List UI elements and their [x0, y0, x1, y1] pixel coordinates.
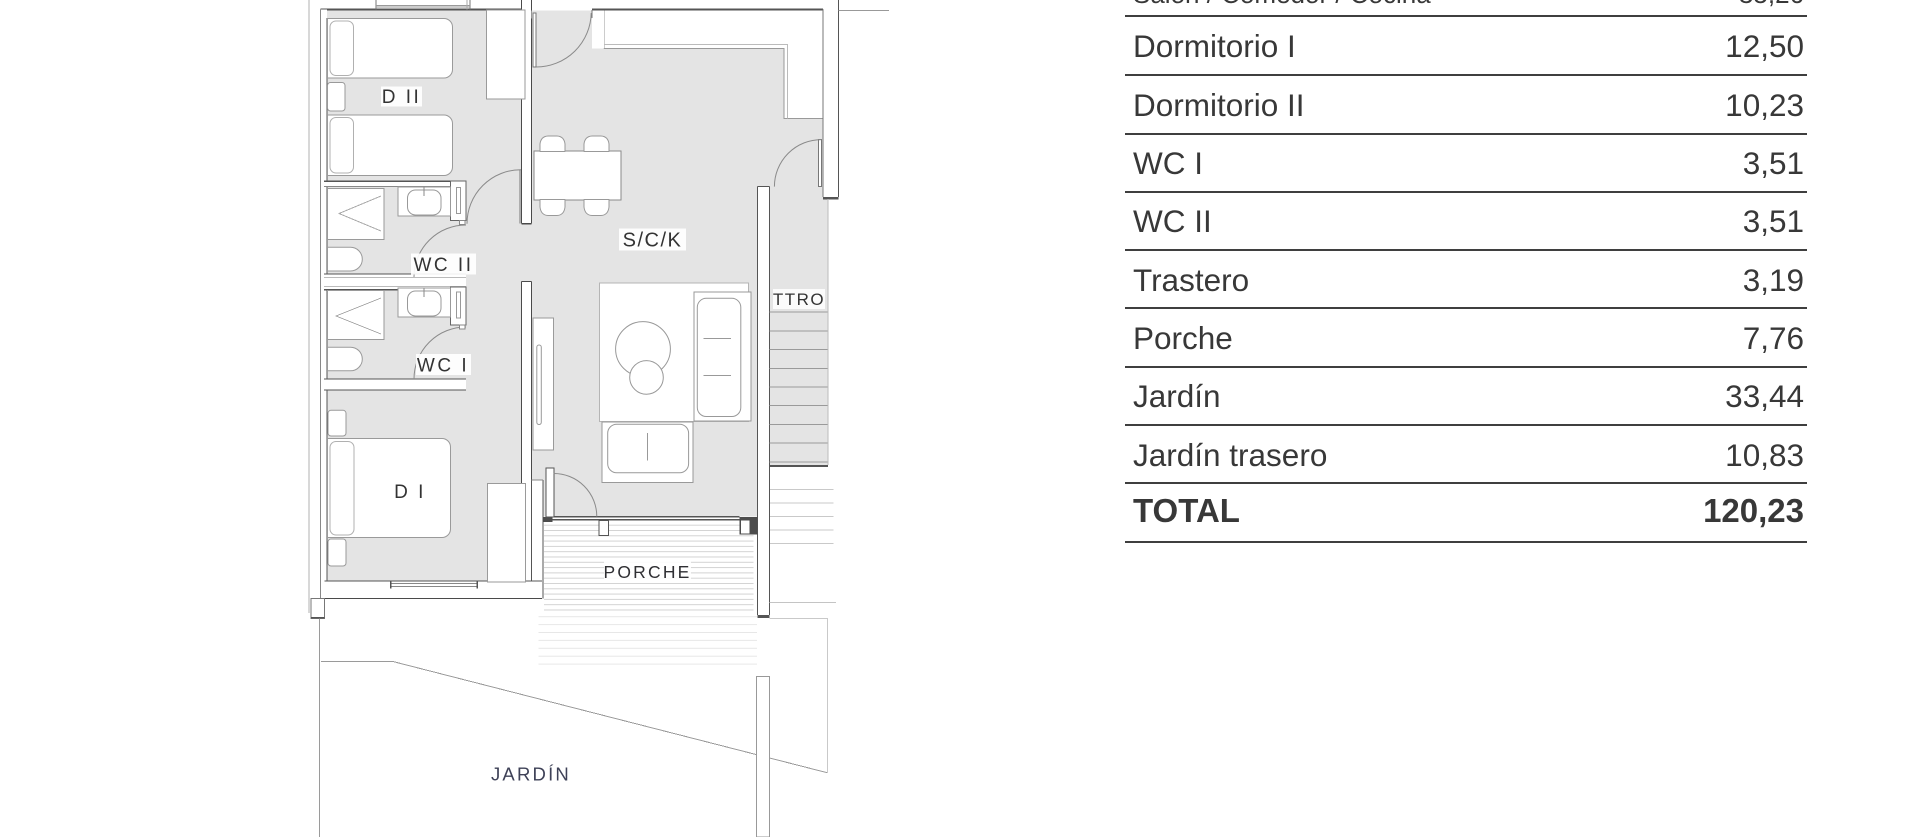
svg-text:WC II: WC II [414, 255, 474, 276]
svg-text:WC I: WC I [417, 356, 469, 377]
svg-text:D I: D I [394, 482, 426, 503]
svg-text:D II: D II [382, 87, 422, 108]
svg-text:TTRO: TTRO [773, 290, 825, 309]
svg-text:PORCHE: PORCHE [603, 562, 691, 582]
svg-text:JARDÍN: JARDÍN [491, 764, 571, 785]
svg-text:S/C/K: S/C/K [623, 230, 683, 252]
